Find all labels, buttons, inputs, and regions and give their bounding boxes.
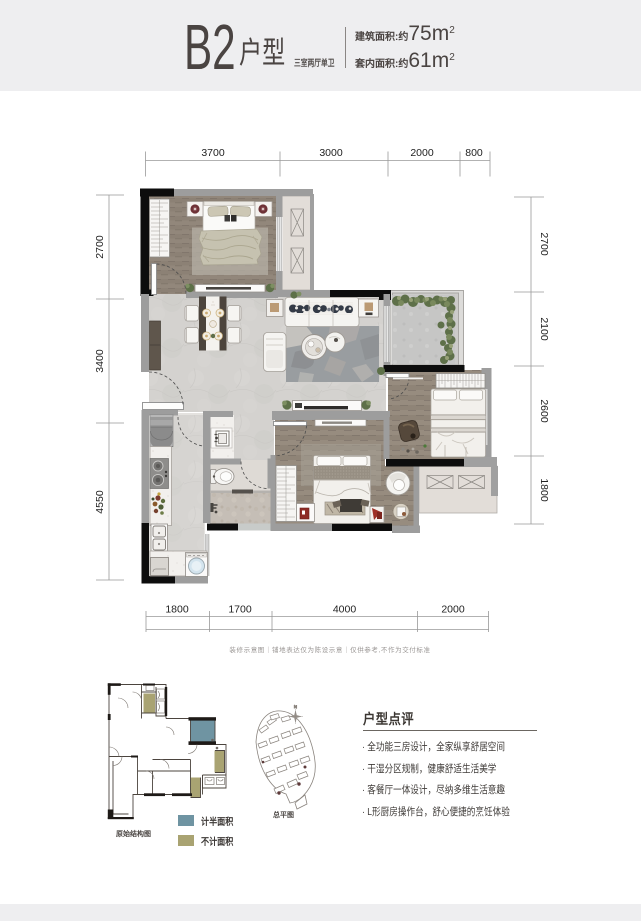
svg-text:4000: 4000 <box>333 604 357 616</box>
svg-text:2100: 2100 <box>538 317 550 341</box>
svg-text:3400: 3400 <box>94 349 106 373</box>
svg-text:2700: 2700 <box>94 235 106 259</box>
svg-text:800: 800 <box>465 147 483 159</box>
svg-text:1800: 1800 <box>165 604 189 616</box>
svg-text:1700: 1700 <box>228 604 252 616</box>
svg-text:4550: 4550 <box>94 490 106 514</box>
svg-text:2700: 2700 <box>538 232 550 256</box>
svg-text:2600: 2600 <box>538 399 550 423</box>
svg-text:N: N <box>294 704 297 709</box>
svg-text:2000: 2000 <box>441 604 465 616</box>
svg-text:1800: 1800 <box>538 478 550 502</box>
svg-text:2000: 2000 <box>410 147 434 159</box>
svg-text:3700: 3700 <box>201 147 225 159</box>
svg-text:3000: 3000 <box>319 147 343 159</box>
